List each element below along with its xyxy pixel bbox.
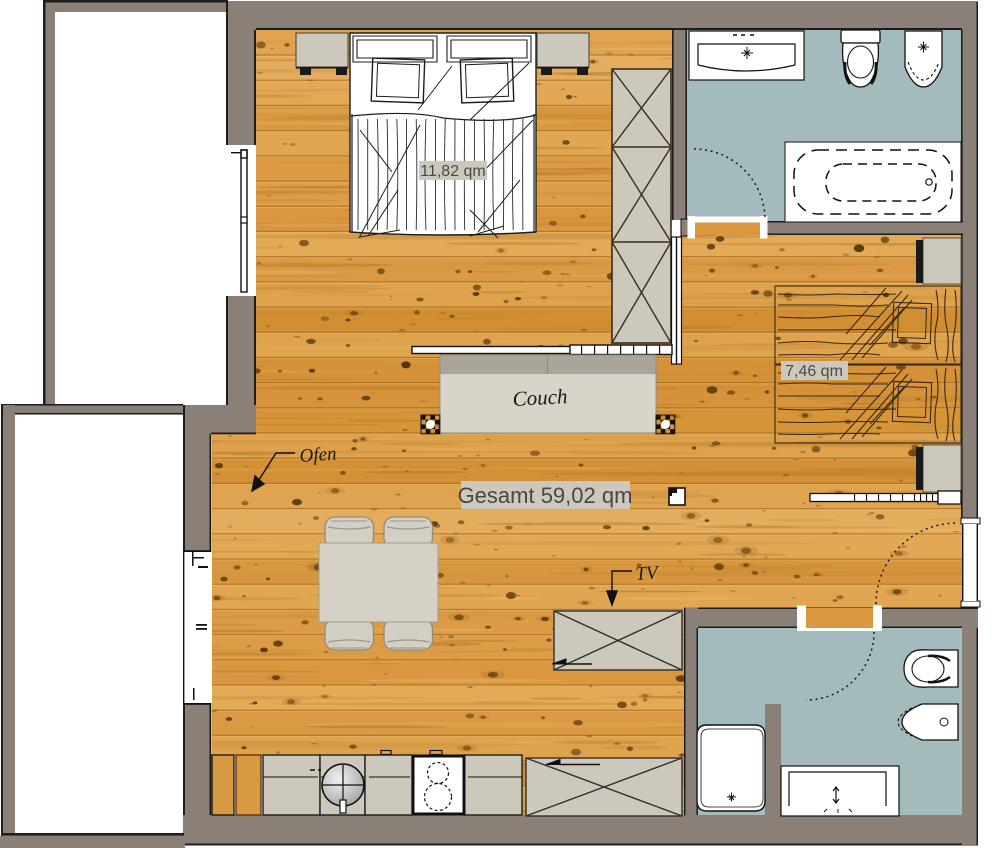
svg-text:Ofen: Ofen	[299, 443, 337, 467]
svg-text:Couch: Couch	[512, 384, 568, 411]
svg-text:Gesamt 59,02 qm: Gesamt 59,02 qm	[458, 483, 633, 508]
svg-text:11,82 qm: 11,82 qm	[420, 163, 486, 180]
svg-text:TV: TV	[635, 562, 661, 585]
svg-text:7,46 qm: 7,46 qm	[785, 363, 843, 380]
